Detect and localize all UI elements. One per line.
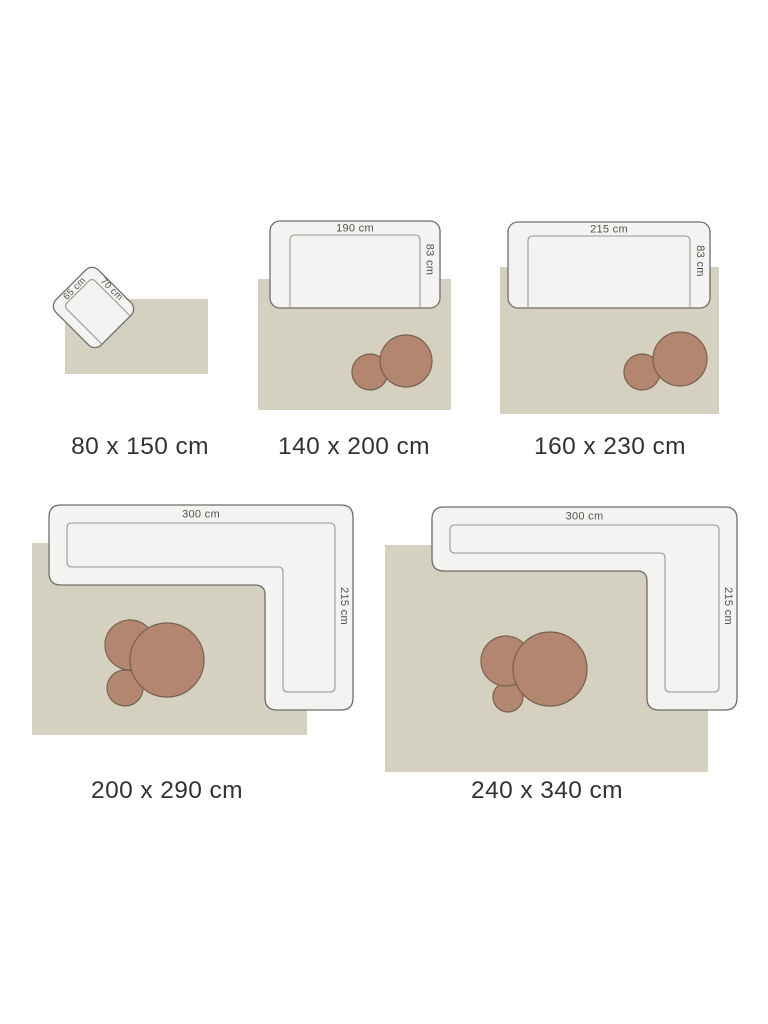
size-caption-160x230: 160 x 230 cm bbox=[534, 433, 686, 461]
corner-sofa-depth-label: 215 cm bbox=[338, 587, 350, 625]
diagram-rug-200x290: 300 cm 215 cm bbox=[22, 492, 367, 747]
corner-sofa-width-label: 300 cm bbox=[182, 509, 220, 521]
pouf-circle-large bbox=[130, 623, 204, 697]
pouf-circle-large bbox=[653, 332, 707, 386]
diagram-rug-240x340: 300 cm 215 cm bbox=[378, 492, 748, 782]
sofa-width-label: 190 cm bbox=[336, 223, 374, 235]
size-caption-80x150: 80 x 150 cm bbox=[71, 433, 209, 461]
sofa-width-label: 215 cm bbox=[590, 224, 628, 236]
sofa-depth-label: 83 cm bbox=[694, 245, 706, 276]
diagram-rug-80x150: 65 cm 70 cm bbox=[35, 250, 220, 385]
corner-sofa-width-label: 300 cm bbox=[566, 511, 604, 523]
diagram-rug-140x200: 190 cm 83 cm bbox=[250, 205, 460, 420]
sofa-shape: 190 cm 83 cm bbox=[270, 221, 440, 308]
rug-size-guide: 65 cm 70 cm 190 cm 83 cm 215 cm 83 cm bbox=[0, 0, 768, 1024]
size-caption-200x290: 200 x 290 cm bbox=[91, 777, 243, 805]
size-caption-140x200: 140 x 200 cm bbox=[278, 433, 430, 461]
sofa-depth-label: 83 cm bbox=[424, 244, 436, 275]
diagram-rug-160x230: 215 cm 83 cm bbox=[492, 205, 727, 420]
size-caption-240x340: 240 x 340 cm bbox=[471, 777, 623, 805]
pouf-circle-large bbox=[513, 632, 587, 706]
corner-sofa-depth-label: 215 cm bbox=[722, 587, 734, 625]
pouf-circle-large bbox=[380, 335, 432, 387]
sofa-shape: 215 cm 83 cm bbox=[508, 222, 710, 308]
